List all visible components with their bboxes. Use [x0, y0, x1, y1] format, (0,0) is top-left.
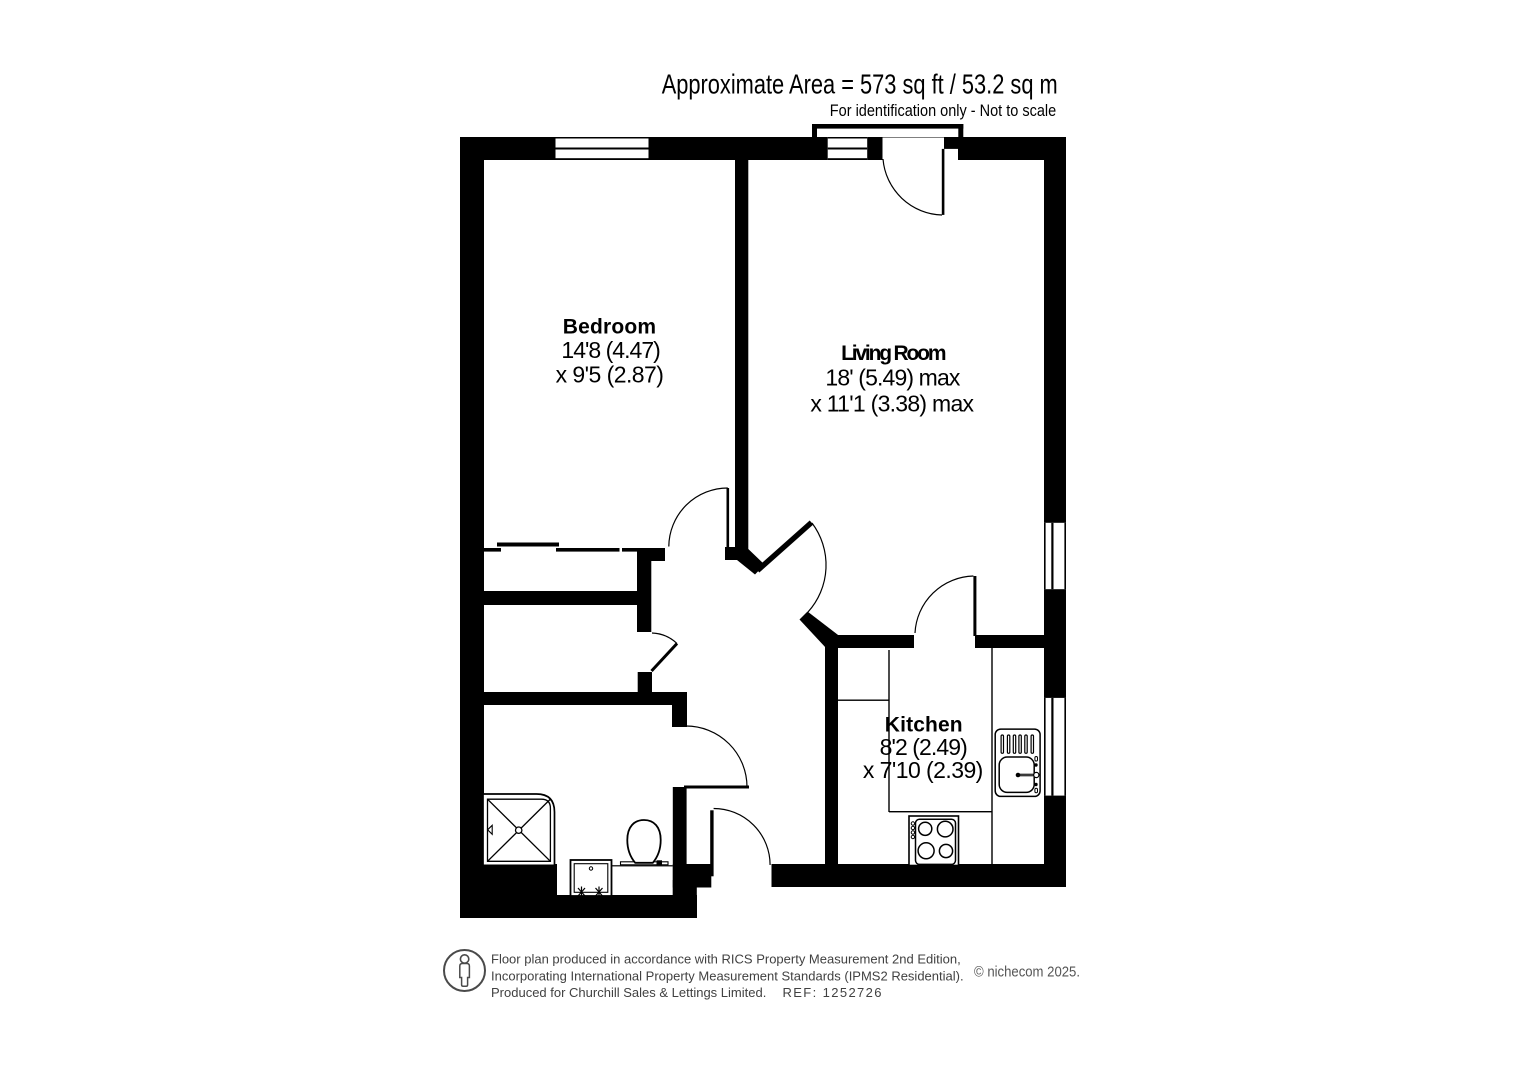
- svg-text:x 7'10 (2.39): x 7'10 (2.39): [863, 757, 984, 783]
- svg-text:REF: 1252726: REF: 1252726: [783, 985, 882, 1000]
- svg-text:Living Room: Living Room: [841, 342, 946, 365]
- svg-text:Incorporating International Pr: Incorporating International Property Mea…: [491, 968, 964, 983]
- svg-text:© nichecom 2025.: © nichecom 2025.: [974, 965, 1080, 981]
- svg-text:18' (5.49) max: 18' (5.49) max: [825, 364, 961, 390]
- svg-text:Approximate Area = 573 sq ft /: Approximate Area = 573 sq ft / 53.2 sq m: [662, 69, 1058, 100]
- svg-text:x 11'1 (3.38) max: x 11'1 (3.38) max: [810, 391, 974, 417]
- svg-text:8'2 (2.49): 8'2 (2.49): [880, 734, 968, 760]
- svg-text:Bedroom: Bedroom: [563, 316, 656, 339]
- svg-text:x 9'5 (2.87): x 9'5 (2.87): [556, 361, 664, 387]
- svg-text:14'8 (4.47): 14'8 (4.47): [561, 337, 660, 363]
- svg-text:Produced for Churchill Sales &: Produced for Churchill Sales & Lettings …: [491, 985, 766, 1000]
- svg-text:Floor plan produced in accorda: Floor plan produced in accordance with R…: [491, 951, 961, 966]
- svg-text:For identification only - Not: For identification only - Not to scale: [830, 102, 1056, 120]
